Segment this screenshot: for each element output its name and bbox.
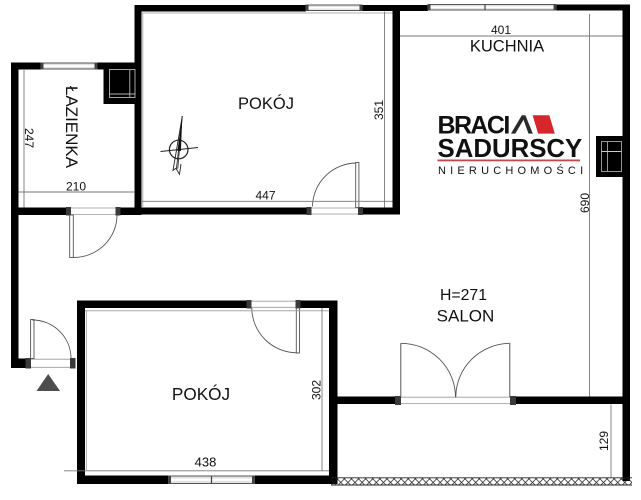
svg-text:SALON: SALON [437,307,495,326]
svg-text:401: 401 [491,23,511,37]
svg-text:447: 447 [255,188,275,202]
svg-text:438: 438 [195,455,217,470]
svg-text:690: 690 [578,193,592,213]
svg-text:351: 351 [372,100,386,120]
svg-text:210: 210 [66,179,86,193]
svg-text:247: 247 [22,128,36,148]
svg-text:POKÓJ: POKÓJ [172,384,230,404]
svg-text:302: 302 [310,380,324,400]
svg-text:H=271: H=271 [440,287,487,304]
svg-text:129: 129 [597,431,611,451]
svg-text:KUCHNIA: KUCHNIA [470,38,544,56]
svg-text:SADURSCY: SADURSCY [438,135,583,163]
svg-text:POKÓJ: POKÓJ [238,94,294,113]
svg-text:NIERUCHOMOŚCI: NIERUCHOMOŚCI [438,164,587,177]
svg-text:ŁAZIENKA: ŁAZIENKA [62,86,81,169]
